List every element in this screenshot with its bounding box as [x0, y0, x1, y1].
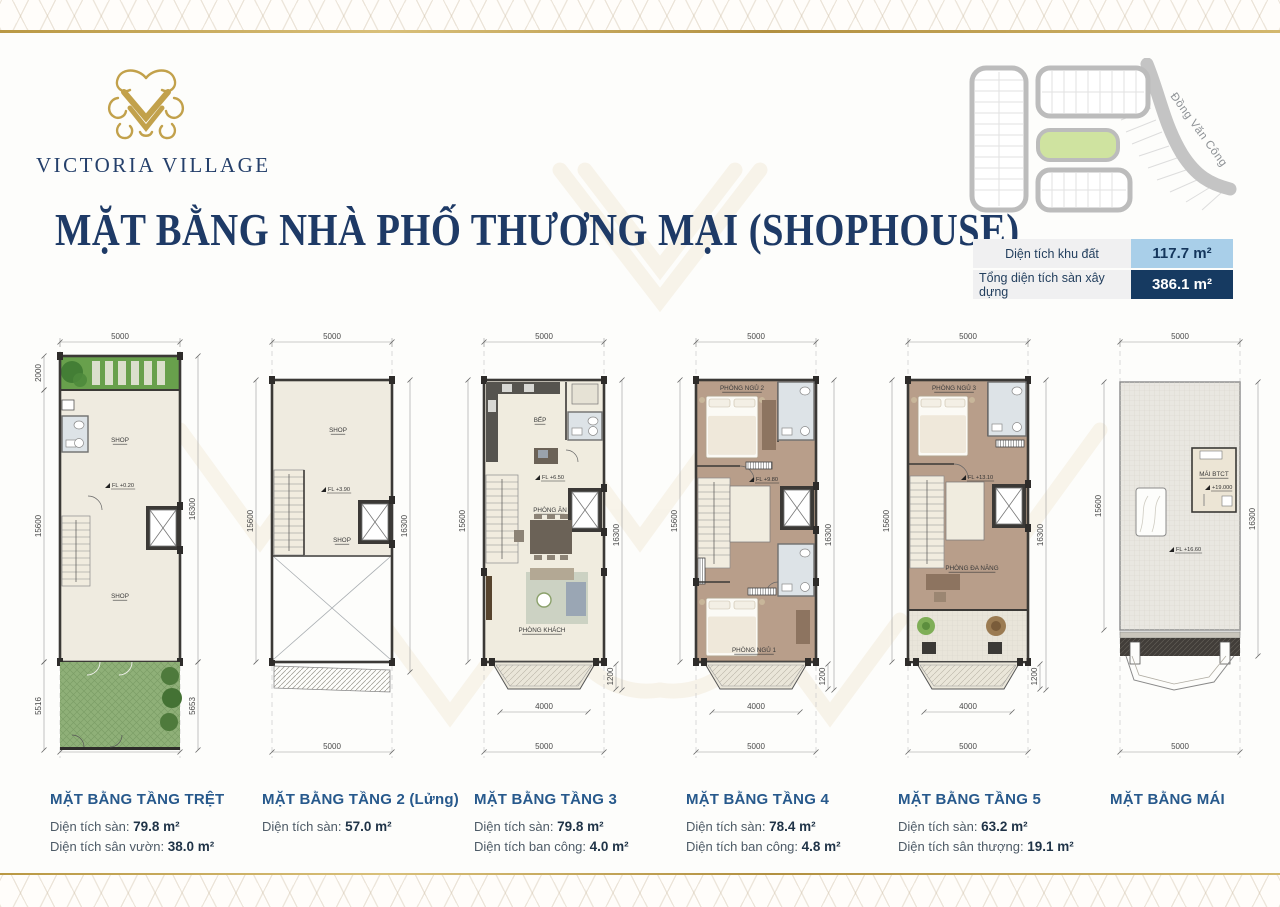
floor-plan-roof: 50005000MÁI BTCT+19.000FL +16.6015600163…: [1074, 320, 1280, 772]
plan-detail-label: Diện tích sàn:: [474, 819, 554, 834]
plan-caption-details: Diện tích sàn: 79.8 m²Diện tích ban công…: [474, 817, 646, 858]
plan-caption-details: Diện tích sàn: 63.2 m²Diện tích sân thượ…: [898, 817, 1070, 858]
svg-text:FL +3.90: FL +3.90: [328, 487, 350, 493]
plan-column-roof: 50005000MÁI BTCT+19.000FL +16.6015600163…: [1074, 320, 1280, 858]
plan-caption-details: Diện tích sàn: 57.0 m²: [262, 817, 434, 837]
brochure-page: VICTORIA VILLAGE MẶT BẰNG NHÀ PHỐ THƯƠNG…: [0, 0, 1280, 907]
svg-text:15600: 15600: [1094, 494, 1103, 517]
plan-detail-value: 4.8 m²: [802, 839, 841, 854]
svg-text:+19.000: +19.000: [1212, 485, 1232, 491]
summary-label: Diện tích khu đất: [973, 239, 1131, 268]
map-block-left: [972, 68, 1026, 210]
plan-caption-title: MẶT BẰNG TẦNG 2 (Lửng): [262, 791, 434, 808]
plan-caption: MẶT BẰNG TẦNG TRỆTDiện tích sàn: 79.8 m²…: [14, 791, 226, 858]
summary-value: 386.1 m²: [1131, 270, 1233, 299]
svg-text:SHOP: SHOP: [329, 427, 347, 434]
plan-detail-value: 38.0 m²: [168, 839, 215, 854]
plan-caption-title: MẶT BẰNG TẦNG TRỆT: [50, 791, 222, 808]
svg-text:PHÒNG ĂN: PHÒNG ĂN: [533, 505, 567, 514]
plan-caption-title: MẶT BẰNG TẦNG 4: [686, 791, 858, 808]
svg-text:PHÒNG ĐA NĂNG: PHÒNG ĐA NĂNG: [945, 563, 998, 572]
plan-detail-value: 79.8 m²: [133, 819, 180, 834]
plan-caption: MẶT BẰNG MÁI: [1074, 791, 1280, 808]
plan-detail-value: 4.0 m²: [590, 839, 629, 854]
plan-detail-value: 19.1 m²: [1027, 839, 1074, 854]
plan-caption: MẶT BẰNG TẦNG 5Diện tích sàn: 63.2 m²Diệ…: [862, 791, 1074, 858]
svg-text:5000: 5000: [535, 742, 553, 751]
svg-text:FL +9.80: FL +9.80: [756, 477, 778, 483]
floor-plan-ground: 50005000SHOPSHOPFL +0.202000156005516163…: [14, 320, 226, 772]
gold-rule-top: [0, 30, 1280, 33]
svg-text:FL +13.10: FL +13.10: [968, 475, 993, 481]
map-subject-lot: [1038, 130, 1118, 160]
svg-text:PHÒNG KHÁCH: PHÒNG KHÁCH: [519, 625, 566, 634]
svg-text:5000: 5000: [323, 332, 341, 341]
brand-name: VICTORIA VILLAGE: [36, 153, 256, 178]
svg-text:MÁI BTCT: MÁI BTCT: [1199, 469, 1229, 478]
svg-text:PHÒNG NGỦ 1: PHÒNG NGỦ 1: [732, 645, 777, 654]
plan-detail-label: Diện tích sàn:: [686, 819, 766, 834]
plan-column-floor5: 50005000PHÒNG NGỦ 3FL +13.10PHÒNG ĐA NĂN…: [862, 320, 1074, 858]
plan-column-floor3: 50005000BẾPFL +6.50PHÒNG ĂNPHÒNG KHÁCH15…: [438, 320, 650, 858]
svg-text:15600: 15600: [34, 514, 43, 537]
svg-text:15600: 15600: [458, 509, 467, 532]
svg-text:SHOP: SHOP: [111, 437, 129, 444]
svg-text:15600: 15600: [670, 509, 679, 532]
svg-text:15600: 15600: [246, 509, 255, 532]
svg-text:4000: 4000: [959, 702, 977, 711]
plan-caption-title: MẶT BẰNG TẦNG 3: [474, 791, 646, 808]
plan-detail-label: Diện tích ban công:: [474, 839, 586, 854]
plan-caption-title: MẶT BẰNG MÁI: [1110, 791, 1280, 808]
plan-caption-details: Diện tích sàn: 79.8 m²Diện tích sân vườn…: [50, 817, 222, 858]
svg-text:5000: 5000: [747, 332, 765, 341]
svg-text:5000: 5000: [111, 332, 129, 341]
svg-text:16300: 16300: [824, 523, 833, 546]
summary-row: Tổng diện tích sàn xây dựng 386.1 m²: [973, 270, 1233, 299]
summary-row: Diện tích khu đất 117.7 m²: [973, 239, 1233, 268]
svg-text:SHOP: SHOP: [333, 537, 351, 544]
plan-caption: MẶT BẰNG TẦNG 2 (Lửng)Diện tích sàn: 57.…: [226, 791, 438, 837]
brand-logo: VICTORIA VILLAGE: [36, 66, 256, 178]
location-map: Đồng Văn Công: [958, 58, 1248, 228]
plan-detail-label: Diện tích ban công:: [686, 839, 798, 854]
plan-detail-label: Diện tích sàn:: [262, 819, 342, 834]
floor-plan-floor3: 50005000BẾPFL +6.50PHÒNG ĂNPHÒNG KHÁCH15…: [438, 320, 650, 772]
plan-detail-label: Diện tích sàn:: [898, 819, 978, 834]
svg-text:5516: 5516: [34, 697, 43, 715]
plan-caption-details: Diện tích sàn: 78.4 m²Diện tích ban công…: [686, 817, 858, 858]
svg-text:1200: 1200: [818, 667, 827, 685]
plan-detail-line: Diện tích sàn: 79.8 m²: [474, 817, 646, 837]
svg-text:5000: 5000: [747, 742, 765, 751]
plan-detail-label: Diện tích sàn:: [50, 819, 130, 834]
svg-text:16300: 16300: [612, 523, 621, 546]
plan-column-ground: 50005000SHOPSHOPFL +0.202000156005516163…: [14, 320, 226, 858]
page-title: MẶT BẰNG NHÀ PHỐ THƯƠNG MẠI (SHOPHOUSE): [55, 203, 1020, 256]
svg-text:5653: 5653: [188, 697, 197, 715]
svg-text:16300: 16300: [1248, 507, 1257, 530]
plan-detail-value: 79.8 m²: [557, 819, 604, 834]
svg-text:5000: 5000: [535, 332, 553, 341]
floor-plans-row: 50005000SHOPSHOPFL +0.202000156005516163…: [14, 320, 1280, 858]
plan-caption: MẶT BẰNG TẦNG 4Diện tích sàn: 78.4 m²Diệ…: [650, 791, 862, 858]
plan-detail-value: 57.0 m²: [345, 819, 392, 834]
svg-text:FL +0.20: FL +0.20: [112, 483, 134, 489]
summary-label: Tổng diện tích sàn xây dựng: [973, 270, 1131, 299]
plan-detail-value: 78.4 m²: [769, 819, 816, 834]
svg-text:16300: 16300: [400, 514, 409, 537]
svg-text:5000: 5000: [323, 742, 341, 751]
plan-detail-line: Diện tích sàn: 57.0 m²: [262, 817, 434, 837]
svg-text:4000: 4000: [535, 702, 553, 711]
map-block-top: [1038, 68, 1148, 116]
floor-plan-floor5: 50005000PHÒNG NGỦ 3FL +13.10PHÒNG ĐA NĂN…: [862, 320, 1074, 772]
plan-column-floor4: 50005000PHÒNG NGỦ 2FL +9.80PHÒNG NGỦ 115…: [650, 320, 862, 858]
svg-text:4000: 4000: [747, 702, 765, 711]
plan-detail-line: Diện tích sàn: 63.2 m²: [898, 817, 1070, 837]
plan-detail-line: Diện tích sân thượng: 19.1 m²: [898, 837, 1070, 857]
plan-detail-line: Diện tích sàn: 78.4 m²: [686, 817, 858, 837]
floor-plan-floor4: 50005000PHÒNG NGỦ 2FL +9.80PHÒNG NGỦ 115…: [650, 320, 862, 772]
svg-text:PHÒNG NGỦ 2: PHÒNG NGỦ 2: [720, 383, 765, 392]
svg-text:5000: 5000: [1171, 742, 1189, 751]
gold-rule-bottom: [0, 873, 1280, 876]
plan-detail-label: Diện tích sân vườn:: [50, 839, 164, 854]
area-summary-table: Diện tích khu đất 117.7 m² Tổng diện tíc…: [973, 239, 1233, 301]
plan-caption-title: MẶT BẰNG TẦNG 5: [898, 791, 1070, 808]
plan-detail-line: Diện tích sân vườn: 38.0 m²: [50, 837, 222, 857]
plan-column-mezzanine: 50005000SHOPSHOPFL +3.901560016300MẶT BẰ…: [226, 320, 438, 858]
plan-detail-line: Diện tích sàn: 79.8 m²: [50, 817, 222, 837]
bottom-border-pattern: [0, 875, 1280, 907]
plan-detail-label: Diện tích sân thượng:: [898, 839, 1024, 854]
svg-text:2000: 2000: [34, 364, 43, 382]
svg-text:5000: 5000: [959, 742, 977, 751]
floor-plan-mezzanine: 50005000SHOPSHOPFL +3.901560016300: [226, 320, 438, 772]
svg-text:15600: 15600: [882, 509, 891, 532]
map-block-bottom: [1038, 170, 1130, 210]
svg-text:1200: 1200: [1030, 667, 1039, 685]
plan-detail-value: 63.2 m²: [981, 819, 1028, 834]
svg-text:FL +6.50: FL +6.50: [542, 475, 564, 481]
svg-text:PHÒNG NGỦ 3: PHÒNG NGỦ 3: [932, 383, 977, 392]
svg-text:SHOP: SHOP: [111, 593, 129, 600]
svg-text:16300: 16300: [188, 497, 197, 520]
plan-detail-line: Diện tích ban công: 4.0 m²: [474, 837, 646, 857]
svg-text:5000: 5000: [959, 332, 977, 341]
top-border-pattern: [0, 0, 1280, 30]
svg-text:1200: 1200: [606, 667, 615, 685]
svg-text:FL +16.60: FL +16.60: [1176, 547, 1201, 553]
svg-text:16300: 16300: [1036, 523, 1045, 546]
plan-detail-line: Diện tích ban công: 4.8 m²: [686, 837, 858, 857]
summary-value: 117.7 m²: [1131, 239, 1233, 268]
victoria-village-monogram-icon: [104, 66, 188, 142]
plan-caption: MẶT BẰNG TẦNG 3Diện tích sàn: 79.8 m²Diệ…: [438, 791, 650, 858]
svg-text:5000: 5000: [1171, 332, 1189, 341]
